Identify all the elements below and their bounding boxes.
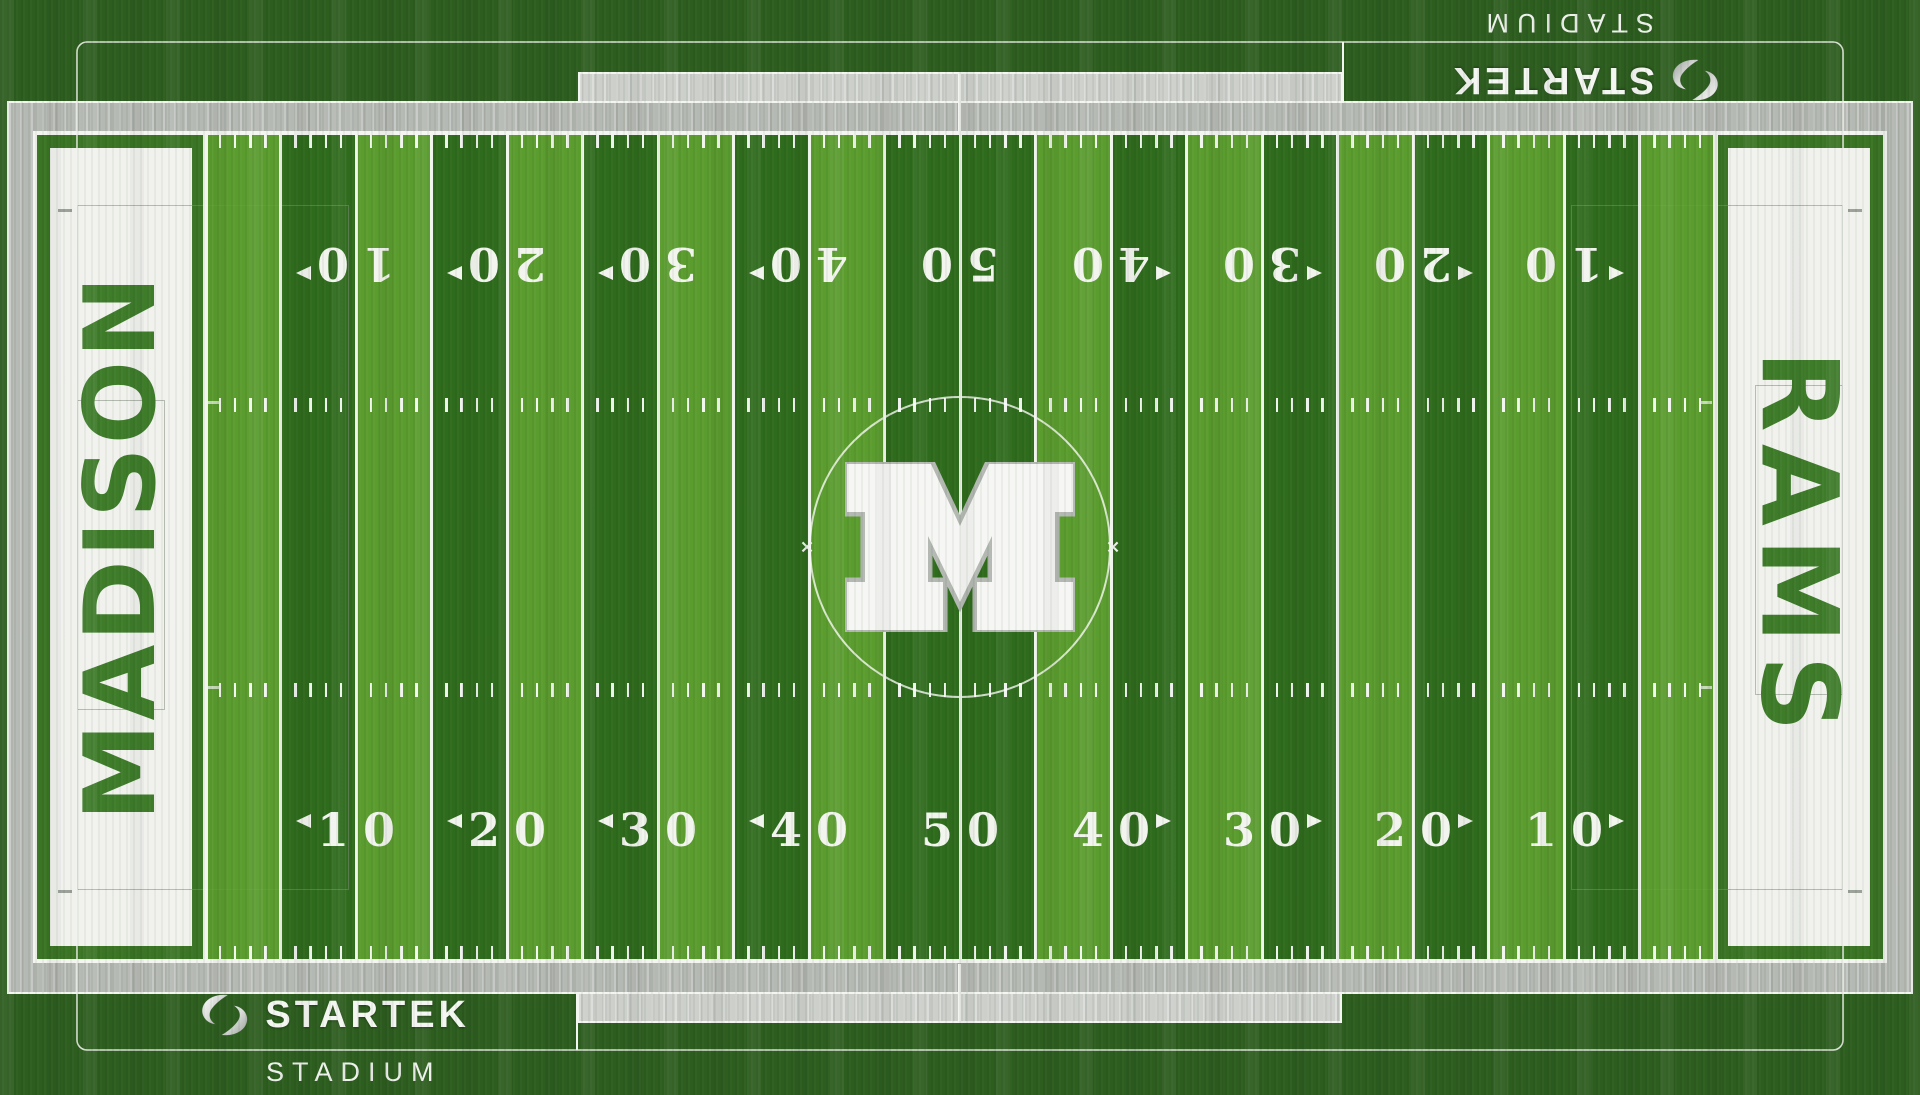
hash-tick	[1472, 135, 1475, 148]
midfield-x-mark: ×	[1105, 537, 1120, 558]
hash-tick	[1578, 683, 1581, 697]
hash-tick	[370, 398, 373, 412]
hash-tick	[762, 946, 765, 959]
hash-tick	[642, 946, 645, 959]
yard-number-digit: 0	[770, 237, 802, 291]
hash-tick	[1668, 398, 1671, 412]
hash-tick	[536, 398, 539, 412]
hash-tick	[823, 398, 826, 412]
yard-number-arrow	[447, 266, 462, 280]
hash-tick	[1502, 135, 1505, 148]
hash-tick	[823, 946, 826, 959]
hash-tick	[1578, 946, 1581, 959]
hash-tick	[1623, 946, 1626, 959]
hash-tick	[1276, 135, 1279, 148]
hash-tick	[1049, 946, 1052, 959]
hash-tick	[1306, 398, 1309, 412]
yard-number-digit: 0	[967, 803, 999, 857]
hash-tick	[1366, 398, 1369, 412]
yard-number-digit: 3	[619, 803, 651, 857]
yard-number: 10	[296, 241, 416, 287]
hash-tick	[853, 946, 856, 959]
hash-tick	[929, 946, 932, 959]
yard-number: 50	[900, 807, 1020, 853]
hash-tick	[1442, 398, 1445, 412]
hash-tick	[1080, 946, 1083, 959]
hash-tick	[868, 135, 871, 148]
yard-number-digit: 0	[1374, 237, 1406, 291]
hash-tick	[672, 946, 675, 959]
hash-tick	[1472, 946, 1475, 959]
hash-tick	[868, 683, 871, 697]
sponsor-name: STARTEK	[265, 994, 470, 1037]
yard-number-digit: 0	[665, 803, 697, 857]
hash-tick	[793, 946, 796, 959]
hash-tick	[566, 946, 569, 959]
yard-number-digit: 4	[1072, 803, 1104, 857]
hash-tick	[1517, 683, 1520, 697]
hash-tick	[1699, 135, 1702, 148]
hash-tick	[1291, 683, 1294, 697]
hash-tick	[1125, 398, 1128, 412]
hash-tick	[551, 135, 554, 148]
hash-tick	[445, 135, 448, 148]
yard-number: 50	[900, 241, 1020, 287]
hash-tick	[1517, 135, 1520, 148]
hash-tick	[1064, 683, 1067, 697]
hash-tick	[521, 135, 524, 148]
hash-tick	[1593, 946, 1596, 959]
hash-end-dash	[1700, 686, 1712, 689]
yard-number-arrow	[296, 814, 311, 828]
hash-tick	[1140, 946, 1143, 959]
hash-tick	[1593, 683, 1596, 697]
hash-tick	[1351, 683, 1354, 697]
hash-tick	[460, 398, 463, 412]
hash-tick	[1533, 398, 1536, 412]
yard-number-arrow	[1609, 814, 1624, 828]
hash-tick	[1457, 946, 1460, 959]
hash-tick	[1215, 946, 1218, 959]
hash-tick	[415, 398, 418, 412]
hash-tick	[642, 683, 645, 697]
yard-number-digit: 2	[1420, 237, 1452, 291]
hash-tick	[1653, 398, 1656, 412]
hash-tick	[929, 398, 932, 412]
hash-tick	[1049, 398, 1052, 412]
hash-tick	[1019, 946, 1022, 959]
hash-tick	[778, 946, 781, 959]
hash-tick	[1366, 946, 1369, 959]
hash-tick	[521, 398, 524, 412]
yard-number: 10	[1504, 241, 1624, 287]
hash-tick	[1442, 946, 1445, 959]
hash-tick	[1502, 683, 1505, 697]
hash-tick	[1200, 135, 1203, 148]
hash-end-dash	[208, 401, 220, 404]
hash-tick	[989, 683, 992, 697]
hash-tick	[1246, 135, 1249, 148]
hash-tick	[1321, 135, 1324, 148]
bench-divider-bottom	[958, 964, 961, 1023]
hash-tick	[1548, 135, 1551, 148]
hash-tick	[1170, 398, 1173, 412]
hash-tick	[823, 683, 826, 697]
hash-tick	[672, 398, 675, 412]
hash-tick	[1231, 683, 1234, 697]
hash-tick	[1306, 946, 1309, 959]
yard-number-digit: 0	[816, 803, 848, 857]
hash-tick	[491, 946, 494, 959]
yard-number: 10	[1504, 807, 1624, 853]
hash-tick	[476, 135, 479, 148]
hash-tick	[400, 135, 403, 148]
hash-tick	[1427, 946, 1430, 959]
hash-tick	[219, 135, 222, 148]
hash-tick	[1231, 135, 1234, 148]
stadium-branding-top-right: STARTEK STADIUM	[1450, 5, 1720, 109]
hash-tick	[1548, 398, 1551, 412]
endzone-text-home: MADISON	[64, 273, 178, 821]
hash-tick	[1321, 946, 1324, 959]
corner-edge-top-right	[1342, 42, 1344, 103]
hash-tick	[1155, 946, 1158, 959]
hash-tick	[551, 398, 554, 412]
yard-number-digit: 2	[468, 803, 500, 857]
yard-number-digit: 0	[1571, 803, 1603, 857]
yard-number: 30	[1202, 807, 1322, 853]
hash-tick	[1200, 683, 1203, 697]
yard-number-digit: 2	[1374, 803, 1406, 857]
hash-tick	[944, 398, 947, 412]
football-field-render: MADISON RAMS ××1020304050403020101020304…	[0, 0, 1920, 1095]
hash-tick	[1170, 683, 1173, 697]
hash-tick	[1095, 683, 1098, 697]
hash-tick	[853, 398, 856, 412]
hash-tick	[823, 135, 826, 148]
yard-number: 40	[749, 241, 869, 287]
hash-tick	[989, 946, 992, 959]
hash-tick	[460, 135, 463, 148]
yard-number-digit: 5	[921, 803, 953, 857]
hash-tick	[1291, 135, 1294, 148]
hash-tick	[687, 683, 690, 697]
hash-tick	[1457, 683, 1460, 697]
yard-number: 40	[1051, 241, 1171, 287]
hash-tick	[1200, 946, 1203, 959]
yard-number: 30	[598, 807, 718, 853]
hash-tick	[551, 946, 554, 959]
hash-tick	[264, 683, 267, 697]
hash-tick	[1351, 135, 1354, 148]
hash-tick	[1306, 683, 1309, 697]
bench-divider-top	[958, 72, 961, 131]
yard-number-digit: 0	[1072, 237, 1104, 291]
hash-tick	[898, 946, 901, 959]
hash-tick	[1246, 683, 1249, 697]
hash-tick	[1623, 683, 1626, 697]
sponsor-row: STARTEK	[1450, 51, 1720, 109]
hash-tick	[596, 135, 599, 148]
yard-number-digit: 0	[1269, 803, 1301, 857]
hash-tick	[944, 135, 947, 148]
hash-tick	[1276, 683, 1279, 697]
hash-tick	[717, 946, 720, 959]
hash-tick	[778, 683, 781, 697]
hash-tick	[294, 398, 297, 412]
hash-tick	[989, 398, 992, 412]
hash-tick	[1397, 398, 1400, 412]
hash-tick	[476, 946, 479, 959]
yard-number-arrow	[1156, 266, 1171, 280]
hash-end-dash	[208, 686, 220, 689]
stadium-branding-bottom-left: STARTEK STADIUM	[200, 986, 470, 1090]
hash-tick	[1684, 398, 1687, 412]
hash-tick	[1246, 398, 1249, 412]
hash-tick	[611, 398, 614, 412]
yard-number-digit: 1	[363, 237, 395, 291]
hash-tick	[249, 135, 252, 148]
yard-number: 30	[598, 241, 718, 287]
hash-tick	[944, 683, 947, 697]
hash-tick	[898, 683, 901, 697]
hash-tick	[1668, 946, 1671, 959]
hash-tick	[325, 683, 328, 697]
hash-tick	[1653, 683, 1656, 697]
hash-tick	[974, 135, 977, 148]
hash-tick	[1427, 135, 1430, 148]
hash-tick	[596, 683, 599, 697]
yard-number-digit: 0	[1420, 803, 1452, 857]
hash-tick	[1125, 946, 1128, 959]
hash-tick	[1231, 398, 1234, 412]
yard-numbers-bottom: 102030405040302010	[37, 807, 1883, 853]
hash-tick	[1366, 683, 1369, 697]
hash-tick	[536, 683, 539, 697]
hash-tick	[445, 398, 448, 412]
hash-tick	[778, 135, 781, 148]
hash-tick	[1668, 683, 1671, 697]
hash-tick	[294, 683, 297, 697]
yard-number-arrow	[749, 814, 764, 828]
hash-tick	[1215, 398, 1218, 412]
hash-tick	[868, 398, 871, 412]
yard-number-digit: 0	[514, 803, 546, 857]
hash-tick	[1608, 398, 1611, 412]
hash-tick	[234, 946, 237, 959]
venue-name: STADIUM	[1450, 7, 1720, 38]
hash-tick	[1684, 946, 1687, 959]
hash-tick	[1427, 398, 1430, 412]
hash-tick	[1004, 135, 1007, 148]
hash-tick	[793, 135, 796, 148]
yard-number: 20	[1353, 807, 1473, 853]
yard-number-digit: 3	[1223, 803, 1255, 857]
hash-tick	[672, 135, 675, 148]
hash-tick	[838, 135, 841, 148]
yard-number-digit: 0	[1223, 237, 1255, 291]
hash-tick	[1095, 398, 1098, 412]
yard-number: 20	[1353, 241, 1473, 287]
yard-number-arrow	[598, 266, 613, 280]
hash-tick	[521, 946, 524, 959]
hash-tick	[1382, 135, 1385, 148]
hash-tick	[793, 398, 796, 412]
hash-tick	[1457, 135, 1460, 148]
apron-left	[9, 103, 35, 992]
hash-tick	[1533, 135, 1536, 148]
hash-tick	[702, 135, 705, 148]
hash-tick	[1140, 135, 1143, 148]
hash-tick	[1578, 398, 1581, 412]
hash-tick	[1653, 135, 1656, 148]
hash-tick	[1442, 683, 1445, 697]
hash-tick	[627, 946, 630, 959]
hash-tick	[1517, 946, 1520, 959]
hash-tick	[642, 398, 645, 412]
hash-tick	[1608, 946, 1611, 959]
sponsor-name: STARTEK	[1450, 59, 1655, 102]
hash-tick	[596, 946, 599, 959]
hash-tick	[1276, 398, 1279, 412]
yard-number-arrow	[1307, 266, 1322, 280]
hash-tick	[1548, 683, 1551, 697]
yard-number-arrow	[447, 814, 462, 828]
hash-tick	[687, 946, 690, 959]
corner-edge-bottom-left	[576, 992, 578, 1050]
hash-tick	[370, 683, 373, 697]
hash-tick	[898, 398, 901, 412]
hash-tick	[1684, 683, 1687, 697]
hash-tick	[1004, 683, 1007, 697]
hash-tick	[974, 398, 977, 412]
hash-tick	[1699, 946, 1702, 959]
startek-swirl-icon	[200, 988, 249, 1042]
hash-tick	[596, 398, 599, 412]
hash-tick	[234, 135, 237, 148]
hash-tick	[1291, 946, 1294, 959]
hash-tick	[370, 946, 373, 959]
hash-tick	[853, 683, 856, 697]
apron-right	[1885, 103, 1911, 992]
hash-tick	[1608, 683, 1611, 697]
hash-tick	[838, 683, 841, 697]
hash-tick	[1004, 946, 1007, 959]
hash-tick	[1049, 135, 1052, 148]
yard-number-arrow	[1458, 814, 1473, 828]
hash-tick	[340, 683, 343, 697]
hash-tick	[913, 135, 916, 148]
hash-tick	[1623, 398, 1626, 412]
hash-tick	[1125, 135, 1128, 148]
hash-tick	[234, 683, 237, 697]
yard-number: 10	[296, 807, 416, 853]
hash-tick	[491, 683, 494, 697]
hash-tick	[415, 135, 418, 148]
hash-tick	[747, 946, 750, 959]
yard-number-digit: 3	[665, 237, 697, 291]
hash-tick	[1533, 946, 1536, 959]
hash-tick	[1593, 135, 1596, 148]
hash-tick	[1064, 398, 1067, 412]
hash-tick	[415, 683, 418, 697]
hash-tick	[1064, 135, 1067, 148]
hash-tick	[747, 683, 750, 697]
hash-tick	[1019, 135, 1022, 148]
yard-number-arrow	[749, 266, 764, 280]
yard-number: 40	[749, 807, 869, 853]
hash-tick	[702, 683, 705, 697]
yard-number: 30	[1202, 241, 1322, 287]
hash-tick	[1623, 135, 1626, 148]
yard-number: 20	[447, 241, 567, 287]
hash-tick	[325, 135, 328, 148]
hash-tick	[913, 683, 916, 697]
hash-tick	[1246, 946, 1249, 959]
hash-tick	[1170, 946, 1173, 959]
hash-tick	[1578, 135, 1581, 148]
hash-tick	[309, 135, 312, 148]
yard-number-digit: 0	[921, 237, 953, 291]
hash-tick	[1306, 135, 1309, 148]
hash-tick	[219, 946, 222, 959]
hash-tick	[929, 135, 932, 148]
hash-tick	[1684, 135, 1687, 148]
playing-field: MADISON RAMS ××1020304050403020101020304…	[33, 131, 1887, 963]
hash-tick	[868, 946, 871, 959]
yard-number-arrow	[1156, 814, 1171, 828]
hash-tick	[294, 135, 297, 148]
midfield-x-mark: ×	[799, 537, 814, 558]
hash-tick	[521, 683, 524, 697]
hash-tick	[1457, 398, 1460, 412]
hash-tick	[445, 946, 448, 959]
hash-tick	[1321, 683, 1324, 697]
hash-tick	[747, 398, 750, 412]
hash-tick	[1608, 135, 1611, 148]
hash-tick	[1427, 683, 1430, 697]
hash-tick	[838, 398, 841, 412]
hash-tick	[370, 135, 373, 148]
hash-end-dash	[1700, 401, 1712, 404]
hash-tick	[1019, 398, 1022, 412]
hash-tick	[1517, 398, 1520, 412]
yard-number: 40	[1051, 807, 1171, 853]
hash-tick	[717, 135, 720, 148]
hash-tick	[1080, 683, 1083, 697]
hash-tick	[566, 398, 569, 412]
hash-tick	[415, 946, 418, 959]
hash-tick	[1140, 398, 1143, 412]
yard-number: 20	[447, 807, 567, 853]
hash-tick	[309, 946, 312, 959]
hash-tick	[1397, 683, 1400, 697]
hash-tick	[1382, 683, 1385, 697]
yard-number-digit: 0	[468, 237, 500, 291]
hash-tick	[778, 398, 781, 412]
hash-tick	[264, 946, 267, 959]
hash-tick	[898, 135, 901, 148]
yard-number-digit: 4	[1118, 237, 1150, 291]
apron-dash	[58, 209, 72, 212]
hash-tick	[1215, 683, 1218, 697]
hash-tick	[762, 135, 765, 148]
hash-tick	[340, 946, 343, 959]
yard-number-arrow	[296, 266, 311, 280]
hash-tick	[1049, 683, 1052, 697]
hash-tick	[385, 946, 388, 959]
hash-tick	[762, 398, 765, 412]
